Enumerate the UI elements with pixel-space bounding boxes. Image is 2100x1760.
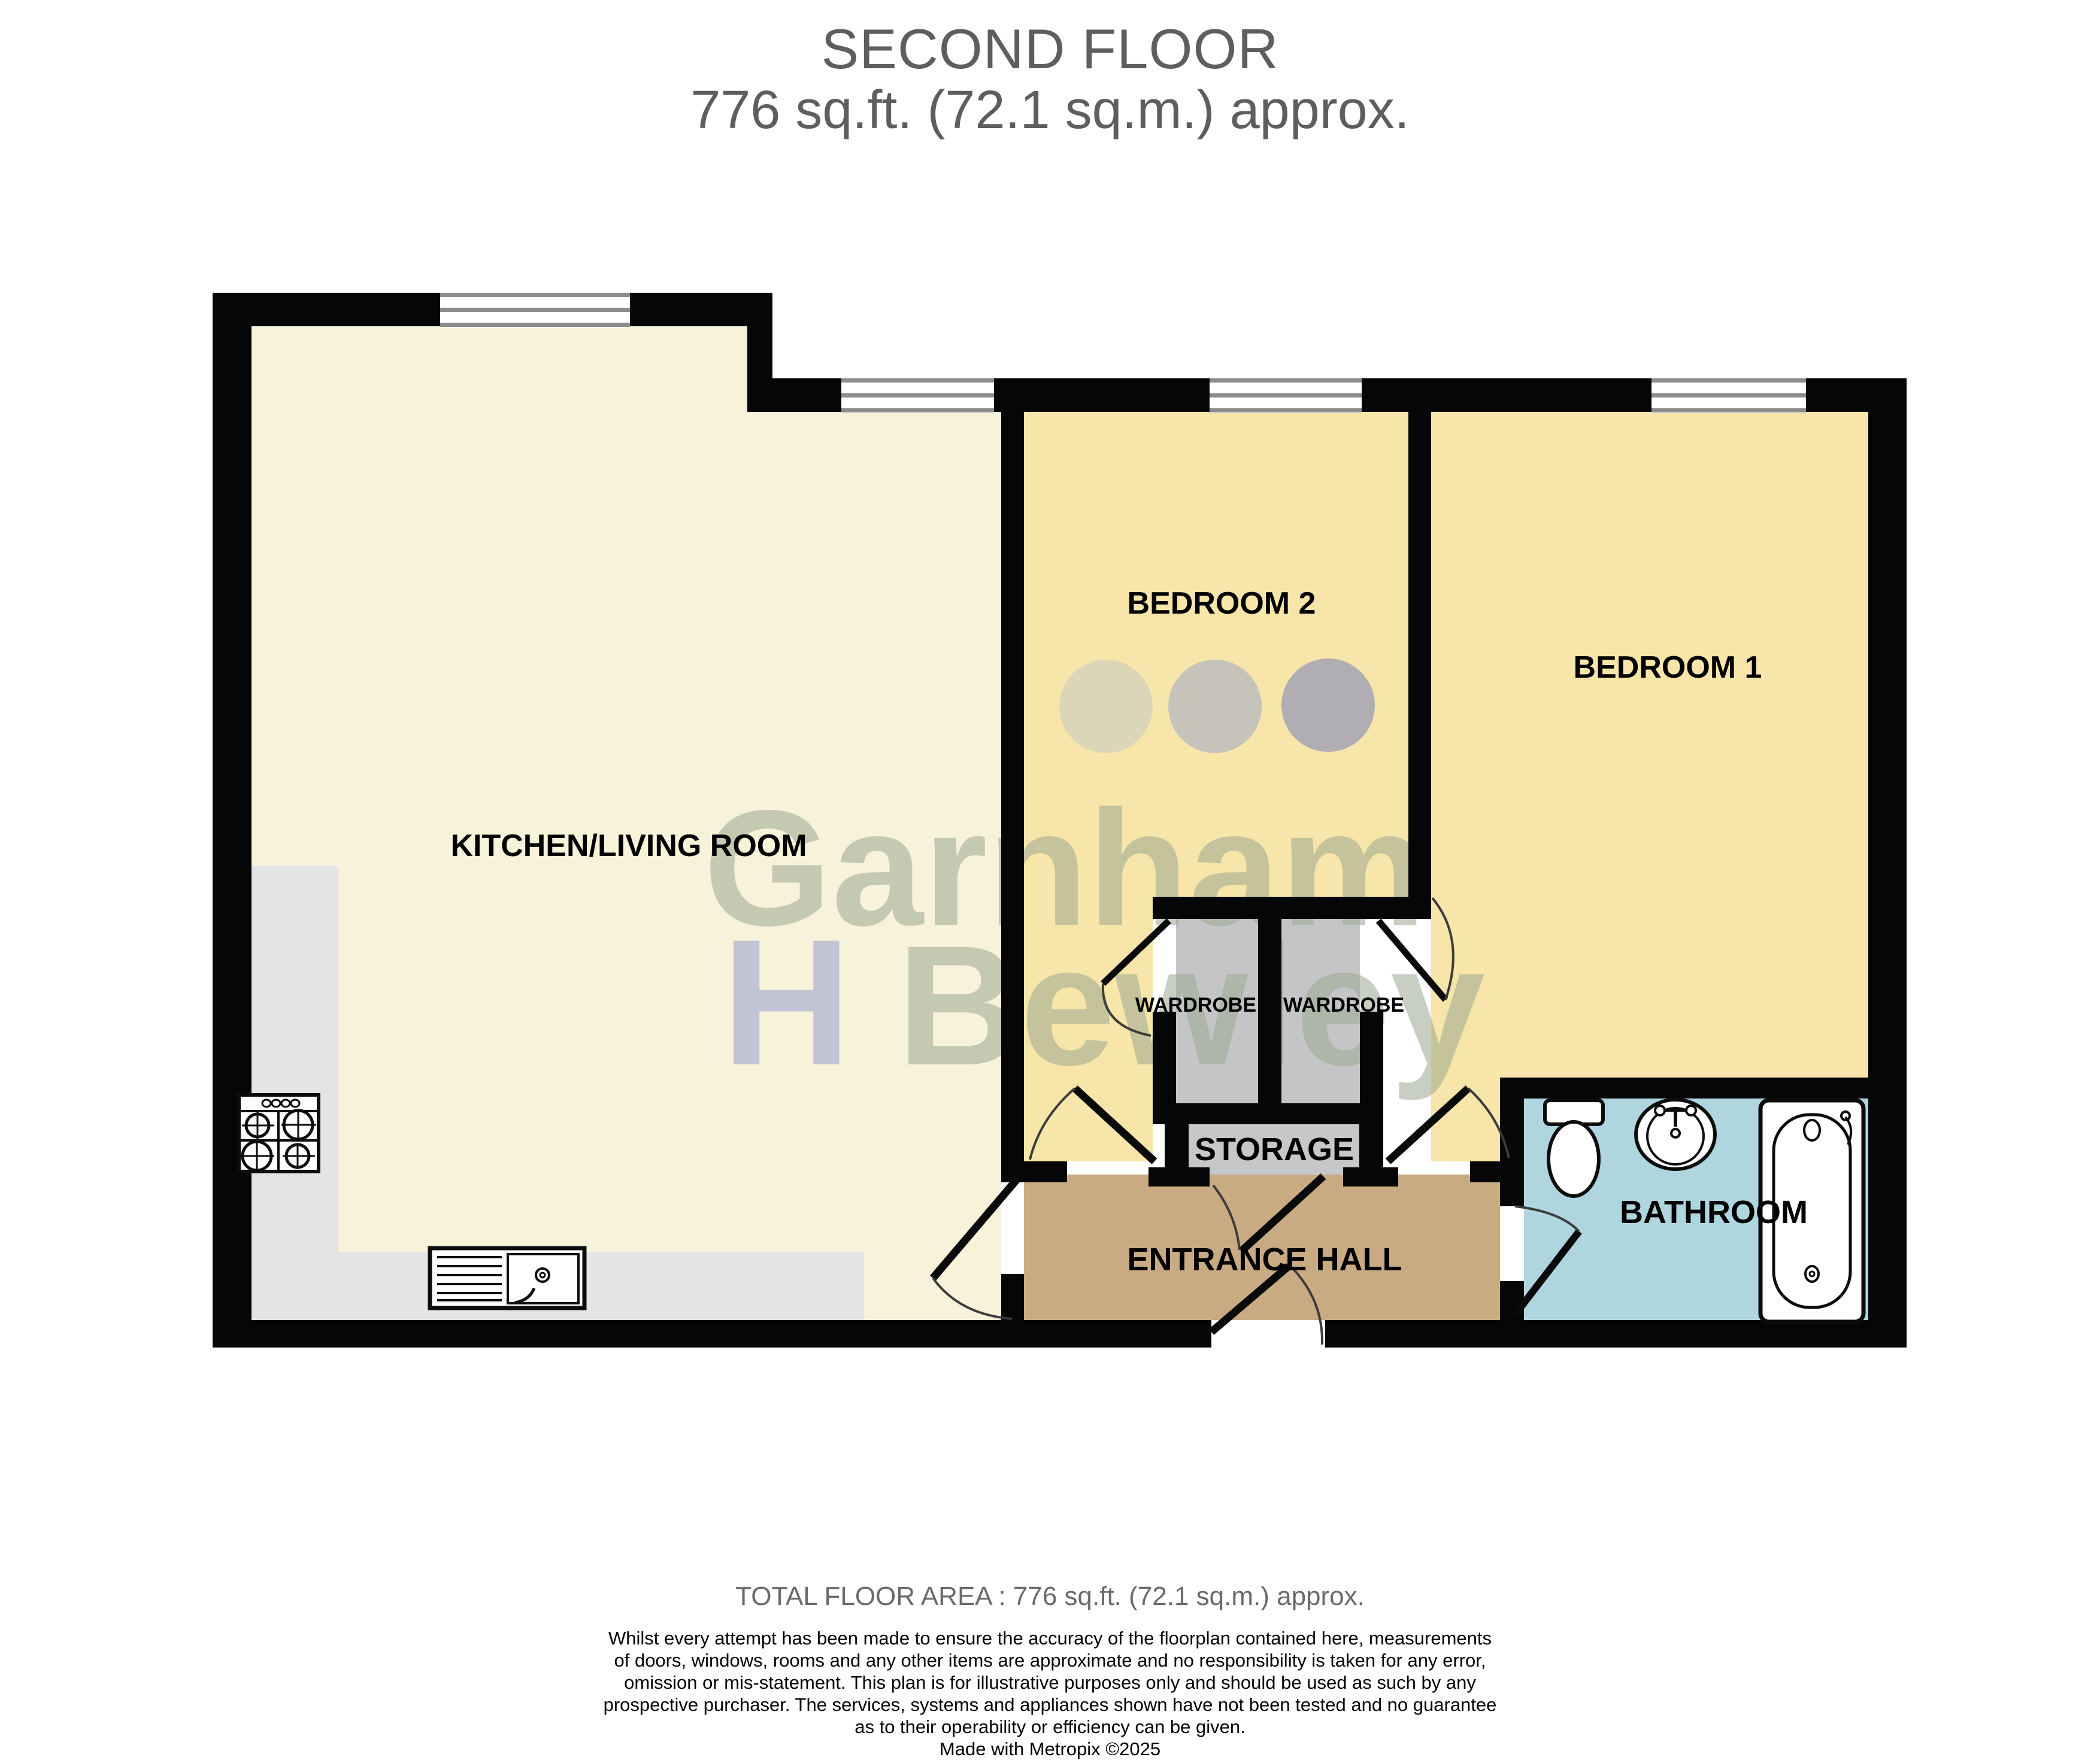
floorplan-canvas: Garnham H Bewley [0, 0, 2100, 1728]
disclaimer-line: Whilst every attempt has been made to en… [0, 1627, 2100, 1649]
watermark-initial: H [722, 902, 851, 1103]
wall-storage-left-foot [1149, 1167, 1210, 1187]
label-bathroom: BATHROOM [1620, 1194, 1808, 1230]
wall-wardrobe-left [1153, 1012, 1176, 1103]
wall-kitchen-bedroom2 [1001, 412, 1024, 1161]
label-kitchen-living: KITCHEN/LIVING ROOM [450, 829, 807, 863]
wall-bedroom2-bedroom1 [1408, 412, 1431, 897]
window-icon [841, 377, 994, 413]
label-wardrobe-left: WARDROBE [1135, 994, 1256, 1016]
watermark-dot-1 [1059, 660, 1153, 753]
watermark-dot-2 [1168, 660, 1262, 753]
label-bedroom2: BEDROOM 2 [1128, 586, 1316, 621]
kitchen-sink-icon [430, 1248, 584, 1308]
disclaimer-line: of doors, windows, rooms and any other i… [0, 1649, 2100, 1671]
label-storage: STORAGE [1195, 1131, 1354, 1167]
label-wardrobe-right: WARDROBE [1283, 994, 1404, 1016]
total-floor-area: TOTAL FLOOR AREA : 776 sq.ft. (72.1 sq.m… [0, 1582, 2100, 1612]
watermark-dot-3 [1281, 659, 1375, 752]
room-bedroom1 [1431, 412, 1868, 1161]
wall-hall-top-left [1001, 1161, 1067, 1182]
toilet-icon [1545, 1100, 1603, 1196]
wall-kitchen-door-post [1001, 1274, 1024, 1320]
label-bedroom1: BEDROOM 1 [1574, 650, 1762, 685]
wall-wardrobe-right [1360, 1012, 1383, 1103]
stove-icon [239, 1095, 319, 1172]
disclaimer-line: as to their operability or efficiency ca… [0, 1716, 2100, 1738]
wall-right [1868, 378, 1907, 1348]
floorplan-page: { "header": { "title": "SECOND FLOOR", "… [0, 0, 2100, 1728]
wall-wardrobe-bottom [1153, 1103, 1383, 1124]
wall-bottom-right [1325, 1320, 1907, 1348]
plan-footer: TOTAL FLOOR AREA : 776 sq.ft. (72.1 sq.m… [0, 1582, 2100, 1760]
wall-wardrobe-middle [1258, 919, 1281, 1103]
window-icon [1210, 377, 1362, 413]
wall-left [213, 293, 251, 1348]
wall-storage-right-foot [1343, 1167, 1398, 1187]
wall-wardrobe-top [1153, 897, 1431, 919]
wall-bathroom-top [1500, 1078, 1907, 1099]
disclaimer-line: prospective purchaser. The services, sys… [0, 1694, 2100, 1716]
label-entrance-hall: ENTRANCE HALL [1128, 1242, 1402, 1277]
wall-bathroom-left [1500, 1099, 1524, 1206]
disclaimer-line: omission or mis-statement. This plan is … [0, 1671, 2100, 1694]
window-icon [1651, 377, 1806, 413]
metropix-credit: Made with Metropix ©2025 [0, 1738, 2100, 1760]
basin-icon [1636, 1100, 1715, 1169]
wall-bottom-left [213, 1320, 1211, 1348]
window-icon [440, 292, 630, 327]
